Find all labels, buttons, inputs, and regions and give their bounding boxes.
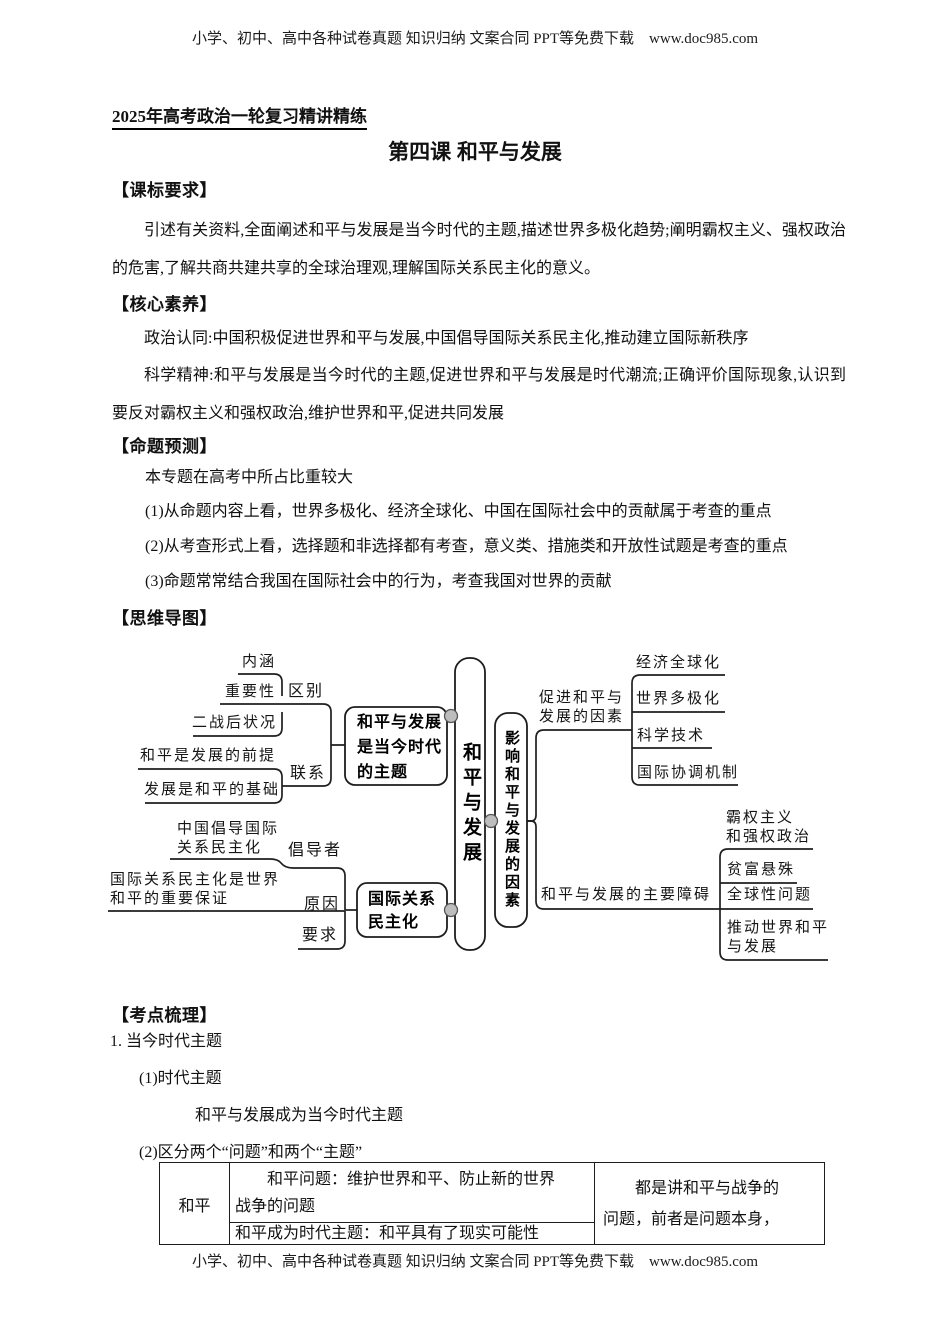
mm-leaf-jichu: 发展是和平的基础 [144, 781, 280, 800]
mm-leaf-neihan: 内涵 [242, 653, 276, 672]
mm-label-promote: 促进和平与 发展的因素 [539, 689, 624, 727]
yuce-line1: 本专题在高考中所占比重较大 [112, 468, 905, 488]
mm-factors-box-label: 影响和平与发展的因素 [495, 713, 527, 927]
comparison-table: 和平 和平问题：维护世界和平、防止新的世界 战争的问题 都是讲和平与战争的 问题… [159, 1162, 825, 1245]
shuli-line2: (1)时代主题 [139, 1069, 222, 1089]
mm-center-box-label: 和平与发展 [455, 658, 485, 950]
mm-label-yaoqiu: 要求 [302, 926, 338, 945]
shuli-line1: 1. 当今时代主题 [110, 1032, 222, 1052]
mm-label-qubie: 区别 [288, 682, 324, 701]
section-heading-shuli: 【考点梳理】 [112, 1001, 217, 1026]
series-title: 2025年高考政治一轮复习精讲精练 [112, 102, 367, 130]
yuce-line4: (3)命题常常结合我国在国际社会中的行为，考查我国对世界的贡献 [112, 572, 905, 592]
mm-leaf-quanqiu: 全球性问题 [727, 886, 812, 905]
mm-label-zhangai: 和平与发展的主要障碍 [541, 886, 711, 905]
mm-leaf-jingji: 经济全球化 [636, 654, 721, 673]
section-heading-biaoyao: 【课标要求】 [112, 176, 217, 201]
mm-leaf-erzhan: 二战后状况 [192, 714, 277, 733]
mm-leaf-qianti: 和平是发展的前提 [140, 747, 276, 766]
mm-leaf-keji: 科学技术 [637, 727, 705, 746]
mm-leaf-xietiao: 国际协调机制 [637, 764, 739, 783]
table-row: 和平 和平问题：维护世界和平、防止新的世界 战争的问题 都是讲和平与战争的 问题… [160, 1163, 825, 1223]
mm-theme-box-label: 和平与发展 是当今时代 的主题 [357, 710, 442, 785]
shuli-line4: (2)区分两个“问题”和两个“主题” [139, 1143, 362, 1163]
yuce-line2: (1)从命题内容上看，世界多极化、经济全球化、中国在国际社会中的贡献属于考查的重… [112, 502, 905, 522]
table-cell-heping: 和平 [160, 1163, 230, 1245]
mm-leaf-tuidong: 推动世界和平 与发展 [727, 919, 829, 957]
section-heading-daotu: 【思维导图】 [112, 604, 217, 629]
mm-leaf-zhongyaoxing: 重要性 [225, 683, 276, 702]
page-header-text: 小学、初中、高中各种试卷真题 知识归纳 文案合同 PPT等免费下载 www.do… [0, 27, 950, 48]
suyang-p2: 科学精神:和平与发展是当今时代的主题,促进世界和平与发展是时代潮流;正确评价国际… [112, 357, 846, 433]
lesson-title: 第四课 和平与发展 [0, 136, 950, 166]
table-cell-peace-problem: 和平问题：维护世界和平、防止新的世界 战争的问题 [230, 1163, 595, 1223]
shuli-line3: 和平与发展成为当今时代主题 [195, 1106, 403, 1126]
connector-qubie-branch [282, 704, 345, 745]
biaoyao-body: 引述有关资料,全面阐述和平与发展是当今时代的主题,描述世界多极化趋势;阐明霸权主… [112, 212, 846, 288]
mm-leaf-changdao: 中国倡导国际 关系民主化 [177, 820, 279, 858]
document-page: 小学、初中、高中各种试卷真题 知识归纳 文案合同 PPT等免费下载 www.do… [0, 0, 950, 1344]
mm-label-yuanyin: 原因 [304, 895, 340, 914]
mm-leaf-baozheng: 国际关系民主化是世界 和平的重要保证 [110, 871, 280, 909]
page-footer-text: 小学、初中、高中各种试卷真题 知识归纳 文案合同 PPT等免费下载 www.do… [0, 1250, 950, 1271]
suyang-p1: 政治认同:中国积极促进世界和平与发展,中国倡导国际关系民主化,推动建立国际新秩序 [112, 320, 846, 358]
section-heading-yuce: 【命题预测】 [112, 432, 217, 457]
mm-label-lianxi: 联系 [290, 764, 326, 783]
mm-leaf-duoji: 世界多极化 [636, 690, 721, 709]
mm-label-changdaozhe: 倡导者 [288, 841, 342, 860]
mm-intl-box-label: 国际关系 民主化 [368, 888, 436, 934]
table-cell-peace-theme: 和平成为时代主题：和平具有了现实可能性 [230, 1223, 595, 1245]
mm-leaf-pinfu: 贫富悬殊 [727, 861, 795, 880]
yuce-line3: (2)从考查形式上看，选择题和非选择都有考查，意义类、措施类和开放性试题是考查的… [112, 537, 905, 557]
section-heading-suyang: 【核心素养】 [112, 290, 217, 315]
table-cell-summary: 都是讲和平与战争的 问题，前者是问题本身， [595, 1163, 825, 1245]
mm-leaf-baquan: 霸权主义 和强权政治 [726, 809, 811, 847]
connector-promote-branch [527, 730, 632, 821]
